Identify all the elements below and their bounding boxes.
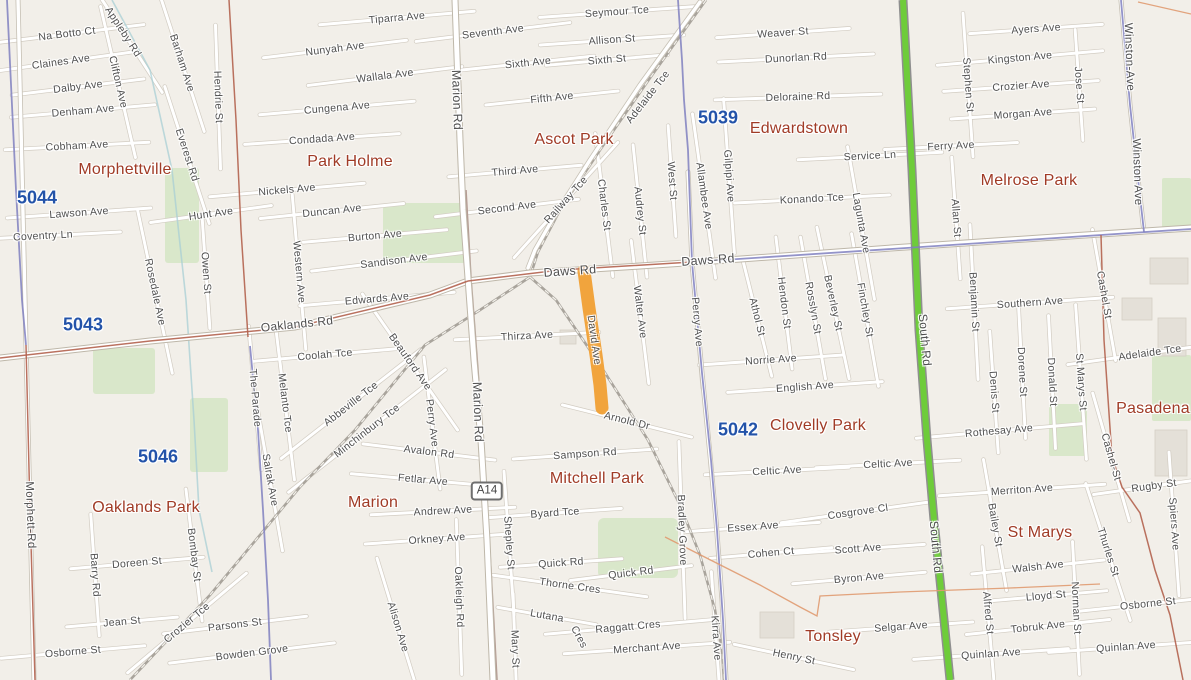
street-label: Barham Ave — [167, 33, 197, 94]
suburb-label: St Marys — [1008, 524, 1073, 542]
street-label: St Marys St — [1073, 353, 1089, 411]
street-label: Arnold Dr — [603, 409, 652, 432]
street-label: Thurles St — [1094, 526, 1121, 578]
street-label: Lloyd St — [1025, 588, 1066, 603]
street-label: David Ave — [585, 315, 604, 366]
street-label: Beverley St — [821, 274, 845, 332]
street-label: Cungena Ave — [304, 99, 371, 117]
street-label: Condada Ave — [289, 131, 356, 148]
street-label: Jose St — [1072, 66, 1087, 104]
street-label: Crozier Tce — [162, 600, 213, 645]
street-label: Charles St — [595, 178, 613, 231]
street-label: Duncan Ave — [302, 202, 362, 220]
street-label: Hendrie St — [211, 71, 225, 124]
suburb-label: Tonsley — [805, 628, 861, 646]
suburb-label: Morphettville — [78, 161, 171, 179]
street-label: Coolah Tce — [297, 347, 353, 364]
map-canvas[interactable]: Appleby RdNa Botto CtClaines AveClifton … — [0, 0, 1191, 680]
street-label: Quinlan Ave — [961, 646, 1021, 662]
street-label: Allison St — [588, 32, 636, 47]
street-label: Perry Ave — [423, 398, 441, 447]
street-label: Coventry Ln — [13, 228, 73, 243]
street-label: Denis St — [987, 371, 1002, 414]
street-label: Konando Tce — [780, 191, 845, 206]
street-label: Sampson Rd — [553, 446, 617, 462]
street-label: Quick Rd — [608, 564, 655, 581]
street-label: Essex Ave — [727, 519, 779, 535]
street-label: Quick Rd — [538, 555, 584, 570]
suburb-label: Mitchell Park — [550, 470, 644, 488]
street-label: Edwards Ave — [344, 290, 409, 308]
street-label: Southern Ave — [996, 295, 1063, 312]
street-label: Kingston Ave — [987, 49, 1053, 67]
street-label: Seventh Ave — [461, 22, 524, 41]
street-label: Cohen Ct — [747, 545, 795, 561]
map-labels-layer: Appleby RdNa Botto CtClaines AveClifton … — [0, 0, 1191, 680]
street-label: Donald St — [1045, 357, 1060, 406]
street-label: Thirza Ave — [501, 329, 554, 344]
street-label: Fetlar Ave — [398, 472, 449, 488]
suburb-label: Pasadena — [1116, 400, 1190, 418]
suburb-label: Ascot Park — [534, 131, 613, 149]
street-label: Second Ave — [477, 198, 537, 217]
street-label: Tiparra Ave — [368, 10, 425, 27]
street-label: Doreen St — [112, 555, 163, 571]
street-label: Rosslyn St — [802, 281, 823, 335]
street-label: Kirra Ave — [708, 615, 723, 661]
street-label: Selgar Ave — [874, 619, 928, 635]
street-label: Beauford Ave — [386, 331, 434, 392]
street-label: Rothesay Ave — [965, 422, 1034, 440]
street-label: Henry St — [772, 647, 817, 668]
street-label: Merchant Ave — [613, 640, 681, 657]
street-label: West St — [665, 161, 680, 200]
street-label: Western Ave — [290, 240, 307, 303]
street-label: Rosedale Ave — [142, 257, 168, 326]
suburb-label: Edwardstown — [750, 120, 848, 138]
street-label: Mary St — [508, 630, 521, 669]
street-label: Denham Ave — [51, 102, 115, 119]
street-label: Morphett-Rd — [23, 481, 37, 549]
street-label: Melanto Tce — [275, 373, 294, 434]
street-label: Oakleigh Rd — [452, 566, 466, 627]
street-label: Dalby Ave — [53, 78, 104, 96]
street-label: The-Parade — [246, 368, 263, 427]
street-label: Audrey St — [631, 186, 648, 236]
street-label: Service Ln — [843, 149, 896, 164]
street-label: Wallala Ave — [356, 67, 415, 86]
street-label: English Ave — [776, 379, 835, 395]
street-label: Allan St — [949, 198, 964, 237]
street-label: Parsons St — [207, 616, 262, 635]
street-label: Quinlan Ave — [1096, 639, 1156, 655]
street-label: Orkney Ave — [408, 531, 466, 547]
street-label: Abbeville Tce — [321, 379, 380, 429]
street-label: Percy Ave — [689, 297, 705, 348]
street-label: Tobruk Ave — [1010, 618, 1066, 636]
street-label: Hendon St — [775, 276, 793, 329]
street-label: Walter Ave — [631, 285, 649, 339]
street-label: Appleby Rd — [102, 5, 143, 60]
street-label: Crozier Ave — [992, 78, 1050, 94]
postcode-label: 5043 — [63, 315, 103, 336]
street-label: Scott Ave — [834, 541, 882, 556]
street-label: Bombay St — [185, 527, 203, 582]
street-label: Norrie Ave — [745, 352, 798, 368]
street-label: Ayers Ave — [1011, 21, 1061, 36]
street-label: Dorene St — [1015, 347, 1030, 398]
street-label: Avalon Rd — [403, 443, 455, 461]
postcode-label: 5044 — [17, 188, 57, 209]
route-badge-a14: A14 — [471, 482, 503, 501]
street-label: Bowden Grove — [215, 643, 289, 664]
street-label: Stephen St — [960, 57, 976, 113]
street-label: Salrak Ave — [259, 453, 280, 507]
street-label: Alison Ave — [385, 600, 412, 653]
street-label: Sandison Ave — [360, 251, 429, 271]
street-label: Benjamin St — [966, 272, 981, 332]
street-label: Fifth Ave — [530, 90, 574, 106]
street-label: Gilpipi Ave — [721, 149, 737, 202]
street-label: Burton Ave — [347, 228, 402, 245]
street-label: Marion Rd — [449, 70, 465, 131]
street-label: Spiers Ave — [1166, 497, 1182, 551]
postcode-label: 5046 — [138, 447, 178, 468]
street-label: Hunt Ave — [188, 205, 234, 223]
street-label: Cres — [568, 624, 590, 650]
postcode-label: 5039 — [698, 108, 738, 129]
street-label: Nickels Ave — [258, 182, 316, 199]
suburb-label: Park Holme — [307, 153, 393, 171]
street-label: Winston Ave — [1130, 138, 1144, 205]
street-label: South Rd — [927, 520, 946, 573]
street-label: Shepley St — [501, 516, 517, 571]
street-label: Lawson Ave — [49, 205, 109, 221]
street-label: Lagunta Ave — [850, 192, 872, 255]
suburb-label: Marion — [348, 494, 398, 512]
street-label: Byron Ave — [833, 570, 884, 586]
street-label: Nunyah Ave — [305, 39, 365, 58]
street-label: Cashel-St — [1099, 432, 1124, 482]
street-label: Marion Rd — [470, 382, 486, 443]
street-label: Bailey St — [985, 502, 1004, 548]
street-label: Celtic Ave — [863, 457, 913, 472]
street-label: Cobham Ave — [45, 138, 108, 153]
street-label: Winston-Ave — [1122, 23, 1136, 92]
street-label: Third Ave — [491, 163, 539, 179]
street-label: Cashel St — [1094, 270, 1114, 320]
street-label: Merriton Ave — [990, 482, 1053, 498]
street-label: Andrew Ave — [413, 503, 472, 518]
street-label: Claines Ave — [31, 52, 91, 72]
suburb-label: Oaklands Park — [92, 499, 200, 517]
street-label: Weaver St — [757, 25, 809, 41]
street-label: Jean St — [103, 614, 142, 629]
suburb-label: Melrose Park — [981, 172, 1078, 190]
street-label: Bradley Grove — [675, 494, 689, 565]
street-label: Barry Rd — [87, 553, 102, 598]
street-label: Raggatt Cres — [595, 618, 661, 636]
street-label: Dunorlan Rd — [765, 50, 828, 65]
street-label: Sixth St — [587, 52, 626, 67]
street-label: Osborne St — [45, 644, 102, 661]
street-label: Adelaide Tce — [624, 68, 673, 125]
street-label: South Rd — [916, 313, 935, 366]
suburb-label: Clovelly Park — [770, 417, 866, 435]
street-label: Byard Tce — [530, 505, 580, 520]
street-label: Daws Rd — [543, 262, 597, 280]
street-label: Sixth Ave — [504, 55, 551, 72]
street-label: Walsh Ave — [1012, 558, 1065, 575]
street-label: Lutana — [529, 607, 564, 625]
street-label: Alfred St — [980, 591, 996, 635]
street-label: Celtic Ave — [752, 464, 802, 479]
street-label: Finchley St — [854, 282, 875, 338]
street-label: Na Botto Ct — [38, 25, 97, 44]
street-label: Morgan Ave — [993, 106, 1053, 122]
street-label: Osborne St — [1119, 595, 1176, 613]
street-label: Deloraine Rd — [765, 90, 830, 104]
street-label: Norman St — [1069, 581, 1084, 634]
street-label: Minchinbury Tce — [332, 402, 403, 461]
street-label: Thorne Cres — [539, 576, 602, 596]
street-label: Seymour Tce — [584, 4, 649, 20]
street-label: Railway Tce — [542, 174, 590, 226]
postcode-label: 5042 — [718, 420, 758, 441]
street-label: Adelaide Tce — [1118, 343, 1183, 364]
street-label: Rugby St — [1131, 477, 1178, 495]
street-label: Oaklands Rd — [260, 313, 334, 335]
street-label: Owen St — [199, 251, 214, 294]
street-label: Clifton Ave — [106, 55, 130, 110]
street-label: Cosgrove Cl — [827, 502, 889, 522]
street-label: Allambee Ave — [693, 162, 714, 231]
street-label: Athol St — [746, 297, 767, 338]
street-label: Everest Rd — [173, 127, 201, 183]
street-label: Ferry Ave — [927, 139, 975, 153]
street-label: Daws-Rd — [681, 251, 735, 269]
